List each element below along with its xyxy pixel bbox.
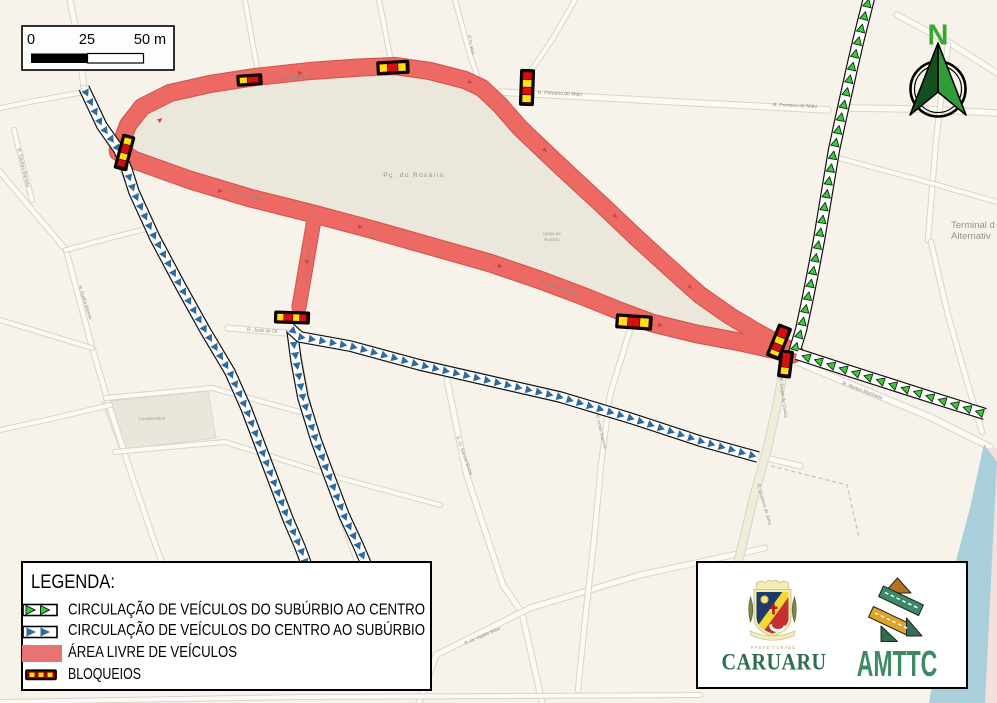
svg-text:Terminal d: Terminal d <box>951 220 995 231</box>
svg-text:CARUARU: CARUARU <box>722 650 827 675</box>
svg-text:0: 0 <box>27 32 35 48</box>
svg-text:AMTTC: AMTTC <box>857 645 938 684</box>
svg-text:LEGENDA:: LEGENDA: <box>31 571 115 593</box>
svg-text:Rosário: Rosário <box>544 237 560 242</box>
svg-text:N: N <box>928 20 949 52</box>
svg-text:25: 25 <box>79 32 95 48</box>
svg-text:CIRCULAÇÃO DE VEÍCULOS DO CENT: CIRCULAÇÃO DE VEÍCULOS DO CENTRO AO SUBÚ… <box>68 622 425 639</box>
svg-text:CIRCULAÇÃO DE VEÍCULOS DO SUBÚ: CIRCULAÇÃO DE VEÍCULOS DO SUBÚRBIO AO CE… <box>68 602 425 619</box>
svg-text:BLOQUEIOS: BLOQUEIOS <box>68 666 141 683</box>
svg-text:Alternativ: Alternativ <box>951 231 991 242</box>
svg-text:Pç. do Rosário: Pç. do Rosário <box>383 172 444 179</box>
svg-text:Cemiterolano: Cemiterolano <box>138 416 165 422</box>
svg-text:50 m: 50 m <box>134 32 166 48</box>
svg-text:Igreja de: Igreja de <box>543 231 561 236</box>
svg-text:ÁREA LIVRE DE VEÍCULOS: ÁREA LIVRE DE VEÍCULOS <box>68 644 237 661</box>
